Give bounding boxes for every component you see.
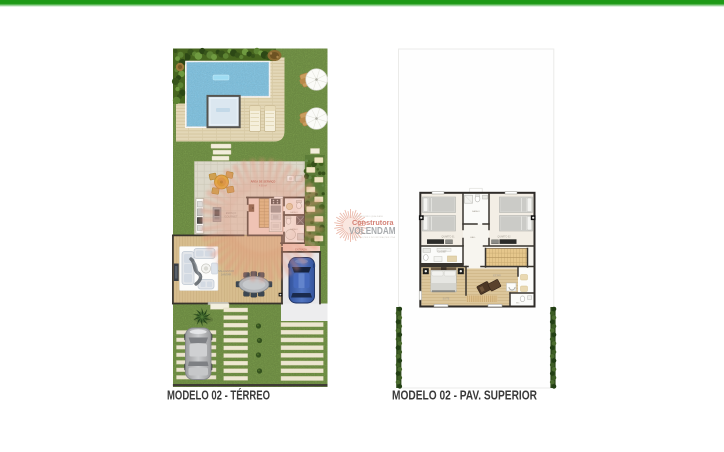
svg-text:MODELO 02 - TÉRREO: MODELO 02 - TÉRREO [167, 388, 270, 403]
svg-text:CLOSET: CLOSET [437, 252, 447, 254]
svg-text:WC: WC [516, 303, 520, 305]
svg-text:SUÍTE: SUÍTE [443, 298, 450, 301]
svg-text:QUARTO 01: QUARTO 01 [442, 235, 456, 238]
svg-text:QUARTO 02: QUARTO 02 [498, 235, 512, 238]
svg-text:ESTAR: ESTAR [493, 275, 501, 278]
svg-text:JANTAR: JANTAR [221, 273, 231, 277]
svg-text:MODELO 02 - PAV. SUPERIOR: MODELO 02 - PAV. SUPERIOR [392, 389, 537, 403]
svg-text:VOLENDAM: VOLENDAM [349, 226, 396, 237]
svg-text:CONSTRUÇÕES E INCORPORAÇÕES LT: CONSTRUÇÕES E INCORPORAÇÕES LTDA [352, 236, 396, 239]
svg-text:BANHO: BANHO [472, 210, 480, 213]
svg-text:HALL: HALL [470, 236, 476, 239]
